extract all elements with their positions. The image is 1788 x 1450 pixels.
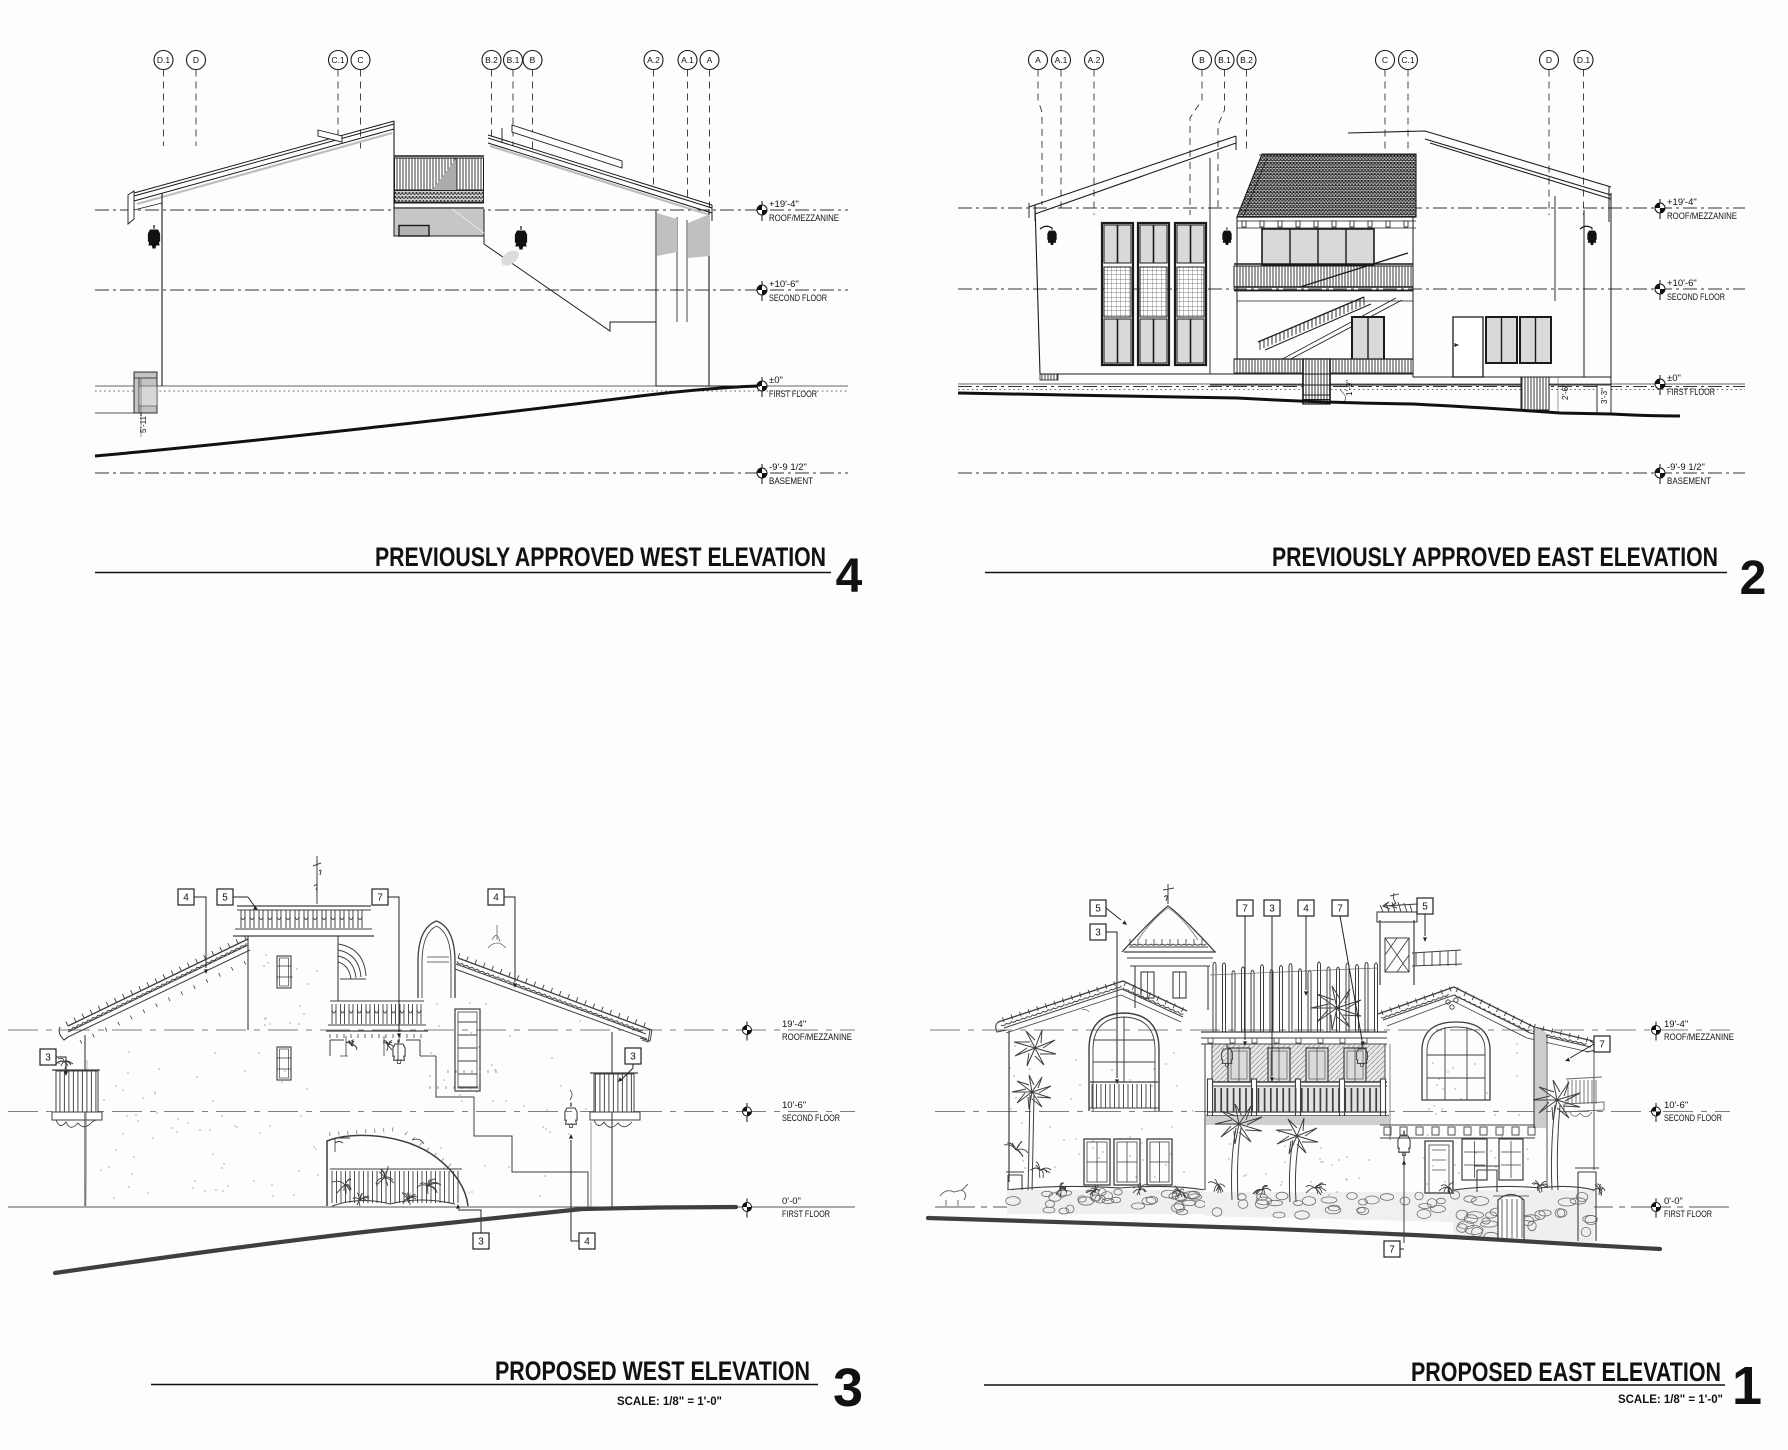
svg-text:SECOND FLOOR: SECOND FLOOR <box>769 293 827 304</box>
svg-text:3: 3 <box>45 1053 51 1064</box>
svg-text:5: 5 <box>1422 902 1428 913</box>
svg-text:SECOND FLOOR: SECOND FLOOR <box>782 1113 840 1124</box>
svg-text:A.2: A.2 <box>647 55 660 65</box>
svg-text:D: D <box>193 55 199 65</box>
svg-text:10'-6": 10'-6" <box>1664 1100 1688 1111</box>
svg-text:PROPOSED WEST ELEVATION: PROPOSED WEST ELEVATION <box>495 1356 810 1386</box>
svg-text:PREVIOUSLY APPROVED WEST ELEVA: PREVIOUSLY APPROVED WEST ELEVATION <box>375 542 826 572</box>
svg-text:B.2: B.2 <box>1240 55 1253 65</box>
svg-text:3: 3 <box>1095 928 1101 939</box>
svg-text:ROOF/MEZZANINE: ROOF/MEZZANINE <box>769 213 839 224</box>
svg-text:3: 3 <box>833 1358 863 1418</box>
svg-text:±0": ±0" <box>1667 373 1681 384</box>
svg-text:B: B <box>1199 55 1205 65</box>
svg-text:C.1: C.1 <box>331 55 345 65</box>
svg-text:SECOND FLOOR: SECOND FLOOR <box>1664 1113 1722 1124</box>
svg-text:BASEMENT: BASEMENT <box>1667 476 1711 487</box>
svg-text:+19'-4": +19'-4" <box>769 199 799 210</box>
svg-text:4: 4 <box>836 550 863 603</box>
svg-text:±0": ±0" <box>769 375 783 386</box>
svg-text:SCALE: 1/8" = 1'-0": SCALE: 1/8" = 1'-0" <box>1618 1392 1723 1406</box>
svg-text:+10'-6": +10'-6" <box>1667 278 1697 289</box>
svg-text:A: A <box>1035 55 1041 65</box>
svg-text:7: 7 <box>1599 1040 1605 1051</box>
svg-text:B.2: B.2 <box>485 55 498 65</box>
svg-text:C: C <box>357 55 363 65</box>
svg-text:4: 4 <box>584 1237 590 1248</box>
svg-text:0'-0": 0'-0" <box>782 1196 801 1207</box>
svg-text:+10'-6": +10'-6" <box>769 279 799 290</box>
svg-text:-9'-9 1/2": -9'-9 1/2" <box>1667 462 1705 473</box>
svg-text:1: 1 <box>1732 1356 1762 1416</box>
svg-text:0'-0": 0'-0" <box>1664 1196 1683 1207</box>
svg-text:5: 5 <box>222 893 228 904</box>
svg-text:1'-9": 1'-9" <box>1345 380 1354 396</box>
svg-text:5: 5 <box>1095 904 1101 915</box>
svg-text:3: 3 <box>1269 904 1275 915</box>
svg-text:D: D <box>1546 55 1552 65</box>
svg-text:2'-6": 2'-6" <box>1561 384 1570 400</box>
svg-text:19'-4": 19'-4" <box>1664 1019 1688 1030</box>
svg-text:B: B <box>530 55 536 65</box>
svg-text:5'-11": 5'-11" <box>139 413 148 433</box>
svg-text:A: A <box>707 55 713 65</box>
svg-text:4: 4 <box>493 893 499 904</box>
svg-text:FIRST FLOOR: FIRST FLOOR <box>782 1209 830 1220</box>
svg-text:PROPOSED EAST ELEVATION: PROPOSED EAST ELEVATION <box>1411 1357 1721 1387</box>
svg-text:4: 4 <box>1303 904 1309 915</box>
svg-text:4: 4 <box>183 893 189 904</box>
svg-text:FIRST FLOOR: FIRST FLOOR <box>1667 387 1715 398</box>
svg-text:-9'-9 1/2": -9'-9 1/2" <box>769 462 807 473</box>
svg-text:7: 7 <box>377 893 383 904</box>
svg-text:A.1: A.1 <box>1055 55 1068 65</box>
svg-text:C.1: C.1 <box>1401 55 1415 65</box>
svg-text:10'-6": 10'-6" <box>782 1100 806 1111</box>
svg-text:7: 7 <box>1389 1245 1395 1256</box>
svg-text:2: 2 <box>1740 552 1767 605</box>
svg-text:SCALE: 1/8" = 1'-0": SCALE: 1/8" = 1'-0" <box>617 1394 722 1408</box>
svg-text:ROOF/MEZZANINE: ROOF/MEZZANINE <box>782 1032 852 1043</box>
svg-text:+19'-4": +19'-4" <box>1667 197 1697 208</box>
svg-text:B.1: B.1 <box>1218 55 1231 65</box>
svg-text:7: 7 <box>1337 904 1343 915</box>
svg-text:D.1: D.1 <box>157 55 171 65</box>
svg-text:3'-3": 3'-3" <box>1600 388 1609 404</box>
svg-text:B.1: B.1 <box>507 55 520 65</box>
svg-text:PREVIOUSLY APPROVED EAST ELEVA: PREVIOUSLY APPROVED EAST ELEVATION <box>1272 542 1718 572</box>
svg-text:SECOND FLOOR: SECOND FLOOR <box>1667 292 1725 303</box>
svg-text:3: 3 <box>478 1237 484 1248</box>
svg-text:A.1: A.1 <box>681 55 694 65</box>
svg-text:A.2: A.2 <box>1088 55 1101 65</box>
svg-text:FIRST FLOOR: FIRST FLOOR <box>769 389 817 400</box>
svg-text:ROOF/MEZZANINE: ROOF/MEZZANINE <box>1667 211 1737 222</box>
svg-text:BASEMENT: BASEMENT <box>769 476 813 487</box>
svg-text:3: 3 <box>630 1052 636 1063</box>
svg-text:7: 7 <box>1242 904 1248 915</box>
svg-text:ROOF/MEZZANINE: ROOF/MEZZANINE <box>1664 1032 1734 1043</box>
svg-text:D.1: D.1 <box>1577 55 1591 65</box>
svg-text:FIRST FLOOR: FIRST FLOOR <box>1664 1209 1712 1220</box>
svg-text:19'-4": 19'-4" <box>782 1019 806 1030</box>
svg-text:C: C <box>1382 55 1388 65</box>
